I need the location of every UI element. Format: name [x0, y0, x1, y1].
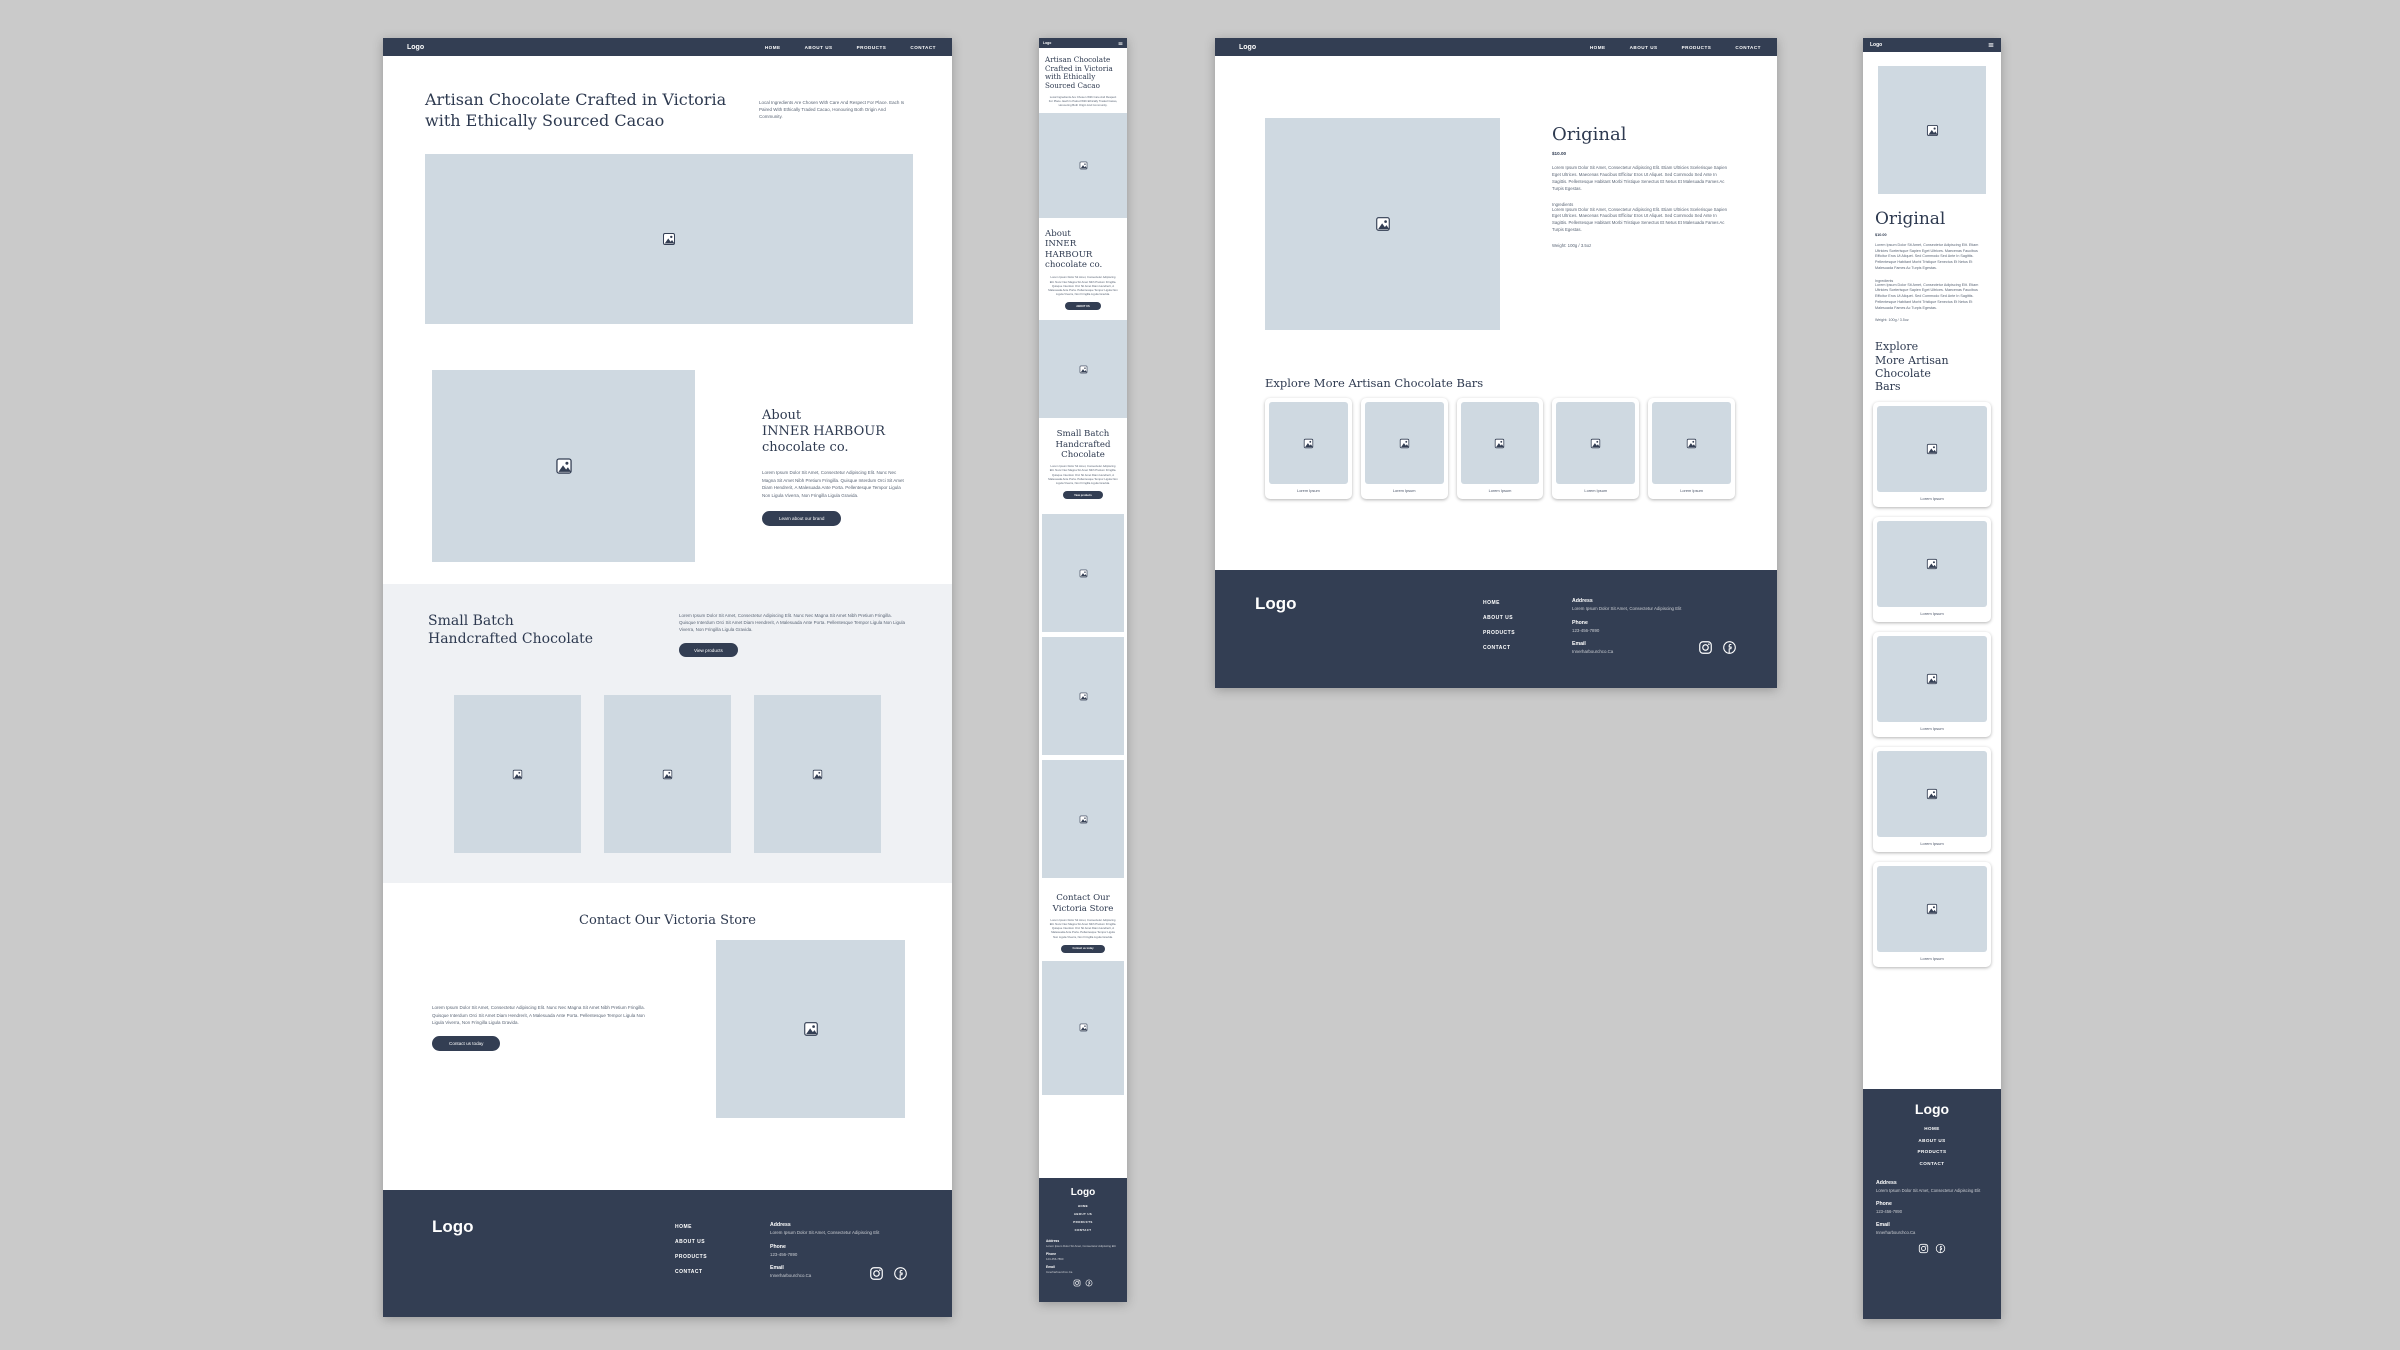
frame-desktop-product: Logo HOME ABOUT US PRODUCTS CONTACT Orig…	[1215, 38, 1777, 688]
product-card-label: Lorem Ipsum	[1877, 952, 1987, 963]
footer-contact-info: AddressLorem Ipsum Dolor Sit Amet, Conse…	[770, 1222, 952, 1287]
card-image-placeholder	[1365, 402, 1444, 484]
address-value: Lorem Ipsum Dolor Sit Amet, Consectetur …	[1572, 606, 1757, 613]
footer-link-contact[interactable]: CONTACT	[1863, 1161, 2001, 1166]
image-icon	[1079, 815, 1088, 824]
image-icon	[803, 1021, 819, 1037]
image-icon	[1590, 438, 1601, 449]
about-title: About INNER HARBOUR chocolate co.	[762, 408, 905, 457]
phone-value: 123-456-7890	[1046, 1257, 1120, 1261]
card-image-placeholder	[1877, 636, 1987, 722]
image-icon	[1079, 365, 1088, 374]
product-price: $10.00	[1875, 233, 1989, 237]
hamburger-menu-icon[interactable]	[1118, 41, 1123, 46]
logo[interactable]: Logo	[1239, 44, 1256, 51]
footer-logo: Logo	[1255, 594, 1297, 614]
product-card[interactable]: Lorem Ipsum	[1361, 398, 1448, 499]
footer-social	[1698, 640, 1737, 655]
main-nav: HOME ABOUT US PRODUCTS CONTACT	[765, 45, 936, 50]
product-image-placeholder	[1042, 637, 1124, 755]
product-description: Lorem Ipsum Dolor Sit Amet, Consectetur …	[1875, 243, 1989, 272]
product-cards-column: Lorem Ipsum Lorem Ipsum Lorem Ipsum Lore…	[1863, 402, 2001, 967]
logo[interactable]: Logo	[407, 44, 424, 51]
about-cta-button[interactable]: Learn about our brand	[762, 511, 841, 526]
card-image-placeholder	[1652, 402, 1731, 484]
footer-link-home[interactable]: HOME	[1039, 1204, 1127, 1208]
card-image-placeholder	[1877, 866, 1987, 952]
footer-link-products[interactable]: PRODUCTS	[1863, 1149, 2001, 1154]
phone-value: 123-456-7890	[1876, 1209, 1988, 1215]
contact-title: Contact Our Victoria Store	[383, 913, 952, 928]
email-value: Innerharbourchco.Ca	[770, 1273, 952, 1280]
card-image-placeholder	[1461, 402, 1540, 484]
footer-logo: Logo	[1039, 1187, 1127, 1198]
frame-desktop-home: Logo HOME ABOUT US PRODUCTS CONTACT Arti…	[383, 38, 952, 1317]
about-section: About INNER HARBOUR chocolate co. Lorem …	[383, 324, 952, 562]
product-image-placeholder	[454, 695, 581, 853]
product-image-placeholder	[604, 695, 731, 853]
footer-link-contact[interactable]: CONTACT	[675, 1269, 707, 1275]
footer-contact-info: AddressLorem Ipsum Dolor Sit Amet, Conse…	[1863, 1180, 2001, 1237]
footer-links: HOME ABOUT US PRODUCTS CONTACT	[1483, 600, 1515, 651]
product-card[interactable]: Lorem Ipsum	[1265, 398, 1352, 499]
product-image-placeholder	[1042, 514, 1124, 632]
product-image-placeholder	[1878, 66, 1986, 194]
footer: Logo HOME ABOUT US PRODUCTS CONTACT Addr…	[1039, 1178, 1127, 1302]
product-card-label: Lorem Ipsum	[1269, 484, 1348, 495]
product-description: Lorem Ipsum Dolor Sit Amet, Consectetur …	[1552, 165, 1729, 193]
nav-link-contact[interactable]: CONTACT	[1735, 45, 1761, 50]
products-body: Lorem Ipsum Dolor Sit Amet, Consectetur …	[1045, 464, 1121, 485]
image-icon	[1079, 161, 1088, 170]
footer-social	[1039, 1279, 1127, 1287]
product-card[interactable]: Lorem Ipsum	[1648, 398, 1735, 499]
footer-link-contact[interactable]: CONTACT	[1483, 645, 1515, 651]
design-canvas: Logo HOME ABOUT US PRODUCTS CONTACT Arti…	[0, 0, 2400, 1350]
contact-cta-button[interactable]: Contact us today	[432, 1036, 500, 1051]
nav-link-contact[interactable]: CONTACT	[910, 45, 936, 50]
explore-section: Explore More Artisan Chocolate Bars	[1863, 340, 2001, 393]
products-title: Small Batch Handcrafted Chocolate	[428, 612, 603, 658]
footer-link-products[interactable]: PRODUCTS	[675, 1254, 707, 1260]
footer-logo: Logo	[1863, 1101, 2001, 1117]
product-price: $10.00	[1552, 151, 1729, 156]
footer-link-products[interactable]: PRODUCTS	[1039, 1220, 1127, 1224]
product-images-row	[428, 695, 907, 853]
address-label: Address	[1876, 1180, 1988, 1186]
image-icon	[1079, 692, 1088, 701]
image-icon	[1926, 124, 1939, 137]
phone-label: Phone	[1572, 620, 1757, 626]
hero-blurb: Local Ingredients Are Chosen With Care A…	[759, 99, 905, 132]
ingredients-text: Lorem Ipsum Dolor Sit Amet, Consectetur …	[1552, 207, 1729, 235]
hero-section: Artisan Chocolate Crafted in Victoria wi…	[1039, 48, 1127, 113]
card-image-placeholder	[1877, 406, 1987, 492]
footer-link-products[interactable]: PRODUCTS	[1483, 630, 1515, 636]
email-label: Email	[1876, 1222, 1988, 1228]
phone-label: Phone	[1046, 1252, 1120, 1256]
phone-value: 123-456-7890	[770, 1252, 952, 1259]
product-image-placeholder	[754, 695, 881, 853]
product-card[interactable]: Lorem Ipsum	[1873, 517, 1991, 622]
facebook-icon[interactable]	[893, 1266, 908, 1281]
footer-social	[1863, 1243, 2001, 1254]
image-icon	[662, 769, 673, 780]
ingredients-text: Lorem Ipsum Dolor Sit Amet, Consectetur …	[1875, 283, 1989, 312]
card-image-placeholder	[1269, 402, 1348, 484]
instagram-icon[interactable]	[869, 1266, 884, 1281]
email-value: Innerharbourchco.Ca	[1046, 1270, 1120, 1274]
hero-title: Artisan Chocolate Crafted in Victoria wi…	[425, 90, 755, 132]
footer-contact-info: AddressLorem Ipsum Dolor Sit Amet, Conse…	[1039, 1239, 1127, 1275]
view-products-button[interactable]: View products	[1063, 491, 1103, 499]
product-name: Original	[1875, 209, 1989, 229]
card-image-placeholder	[1877, 521, 1987, 607]
phone-label: Phone	[1876, 1201, 1988, 1207]
instagram-icon[interactable]	[1698, 640, 1713, 655]
product-image-placeholder	[1042, 760, 1124, 878]
header-navbar: Logo HOME ABOUT US PRODUCTS CONTACT	[383, 38, 952, 56]
product-card[interactable]: Lorem Ipsum	[1873, 747, 1991, 852]
footer-link-about[interactable]: ABOUT US	[1039, 1212, 1127, 1216]
footer: Logo HOME ABOUT US PRODUCTS CONTACT Addr…	[383, 1190, 952, 1317]
product-card-label: Lorem Ipsum	[1652, 484, 1731, 495]
footer-link-home[interactable]: HOME	[1863, 1126, 2001, 1131]
product-weight: Weight: 100g / 3.5oz	[1875, 318, 1989, 322]
nav-link-home[interactable]: HOME	[765, 45, 781, 50]
product-card[interactable]: Lorem Ipsum	[1873, 402, 1991, 507]
product-card-label: Lorem Ipsum	[1365, 484, 1444, 495]
header-navbar: Logo	[1039, 38, 1127, 48]
contact-cta-button[interactable]: Contact us today	[1061, 945, 1104, 953]
hero-section: Artisan Chocolate Crafted in Victoria wi…	[383, 56, 952, 132]
contact-title: Contact Our Victoria Store	[1045, 893, 1121, 914]
main-nav: HOME ABOUT US PRODUCTS CONTACT	[1590, 45, 1761, 50]
product-card-label: Lorem Ipsum	[1877, 722, 1987, 733]
instagram-icon[interactable]	[1918, 1243, 1929, 1254]
header-navbar: Logo	[1863, 38, 2001, 52]
contact-image-placeholder	[716, 940, 905, 1118]
footer: Logo HOME ABOUT US PRODUCTS CONTACT Addr…	[1215, 570, 1777, 688]
phone-label: Phone	[770, 1244, 952, 1250]
image-icon	[1303, 438, 1314, 449]
footer-links: HOME ABOUT US PRODUCTS CONTACT	[1039, 1204, 1127, 1232]
footer-links: HOME ABOUT US PRODUCTS CONTACT	[675, 1224, 707, 1275]
product-name: Original	[1552, 124, 1729, 145]
image-icon	[1926, 443, 1938, 455]
explore-title: Explore More Artisan Chocolate Bars	[1875, 340, 1989, 393]
image-icon	[1494, 438, 1505, 449]
contact-body: Lorem Ipsum Dolor Sit Amet, Consectetur …	[1045, 918, 1121, 939]
about-section: About INNER HARBOUR chocolate co. Lorem …	[1039, 218, 1127, 320]
image-icon	[1926, 788, 1938, 800]
contact-section: Contact Our Victoria Store Lorem Ipsum D…	[1039, 883, 1127, 961]
product-detail-section: Original $10.00 Lorem Ipsum Dolor Sit Am…	[1215, 56, 1777, 330]
product-card-label: Lorem Ipsum	[1461, 484, 1540, 495]
image-icon	[1079, 569, 1088, 578]
product-detail-section: Original $10.00 Lorem Ipsum Dolor Sit Am…	[1863, 209, 2001, 322]
nav-link-about[interactable]: ABOUT US	[805, 45, 833, 50]
image-icon	[512, 769, 523, 780]
image-icon	[662, 232, 676, 246]
image-icon	[1926, 673, 1938, 685]
footer-links: HOME ABOUT US PRODUCTS CONTACT	[1863, 1126, 2001, 1166]
image-icon	[1079, 1023, 1088, 1032]
footer: Logo HOME ABOUT US PRODUCTS CONTACT Addr…	[1863, 1089, 2001, 1319]
products-title: Small Batch Handcrafted Chocolate	[1045, 429, 1121, 460]
image-icon	[1399, 438, 1410, 449]
image-icon	[1926, 903, 1938, 915]
facebook-icon[interactable]	[1935, 1243, 1946, 1254]
contact-image-placeholder	[1042, 961, 1124, 1095]
about-image-placeholder	[1039, 320, 1127, 418]
hamburger-menu-icon[interactable]	[1988, 42, 1994, 48]
view-products-button[interactable]: View products	[679, 643, 738, 657]
footer-link-about[interactable]: ABOUT US	[1863, 1138, 2001, 1143]
contact-section: Contact Our Victoria Store Lorem Ipsum D…	[383, 883, 952, 1118]
product-card-label: Lorem Ipsum	[1877, 492, 1987, 503]
address-label: Address	[1572, 598, 1757, 604]
phone-value: 123-456-7890	[1572, 628, 1757, 635]
image-icon	[1686, 438, 1697, 449]
hero-title: Artisan Chocolate Crafted in Victoria wi…	[1045, 56, 1119, 91]
frame-mobile-home: Logo Artisan Chocolate Crafted in Victor…	[1039, 38, 1127, 1302]
footer-social	[869, 1266, 908, 1281]
footer-link-home[interactable]: HOME	[675, 1224, 707, 1230]
explore-title: Explore More Artisan Chocolate Bars	[1265, 376, 1735, 390]
product-weight: Weight: 100g / 3.5oz	[1552, 243, 1729, 248]
hero-image-placeholder	[425, 154, 913, 324]
explore-section: Explore More Artisan Chocolate Bars Lore…	[1215, 330, 1777, 499]
hero-blurb: Local Ingredients Are Chosen With Care A…	[1045, 95, 1121, 108]
about-body: Lorem Ipsum Dolor Sit Amet, Consectetur …	[1045, 275, 1121, 296]
address-value: Lorem Ipsum Dolor Sit Amet, Consectetur …	[770, 1230, 952, 1237]
image-icon	[1926, 558, 1938, 570]
logo[interactable]: Logo	[1870, 42, 1882, 48]
address-value: Lorem Ipsum Dolor Sit Amet, Consectetur …	[1046, 1244, 1120, 1248]
footer-link-contact[interactable]: CONTACT	[1039, 1228, 1127, 1232]
address-value: Lorem Ipsum Dolor Sit Amet, Consectetur …	[1876, 1188, 1988, 1194]
nav-link-products[interactable]: PRODUCTS	[1682, 45, 1712, 50]
image-icon	[812, 769, 823, 780]
logo[interactable]: Logo	[1043, 41, 1051, 45]
image-icon	[1375, 216, 1391, 232]
product-card[interactable]: Lorem Ipsum	[1552, 398, 1639, 499]
contact-body: Lorem Ipsum Dolor Sit Amet, Consectetur …	[432, 1004, 654, 1026]
address-label: Address	[1046, 1239, 1120, 1243]
instagram-icon[interactable]	[1073, 1279, 1081, 1287]
card-image-placeholder	[1877, 751, 1987, 837]
product-card[interactable]: Lorem Ipsum	[1873, 862, 1991, 967]
products-section: Small Batch Handcrafted Chocolate Lorem …	[383, 584, 952, 884]
products-body: Lorem Ipsum Dolor Sit Amet, Consectetur …	[679, 612, 907, 634]
frame-mobile-product: Logo Original $10.00 Lorem Ipsum Dolor S…	[1863, 38, 2001, 1319]
about-title: About INNER HARBOUR chocolate co.	[1045, 229, 1109, 270]
nav-link-products[interactable]: PRODUCTS	[857, 45, 887, 50]
about-cta-button[interactable]: ABOUT US	[1065, 302, 1101, 310]
footer-link-about[interactable]: ABOUT US	[1483, 615, 1515, 621]
footer-link-home[interactable]: HOME	[1483, 600, 1515, 606]
products-section: Small Batch Handcrafted Chocolate Lorem …	[1039, 418, 1127, 509]
email-value: Innerharbourchco.Ca	[1876, 1230, 1988, 1236]
card-image-placeholder	[1556, 402, 1635, 484]
product-card-label: Lorem Ipsum	[1556, 484, 1635, 495]
nav-link-home[interactable]: HOME	[1590, 45, 1606, 50]
product-card-label: Lorem Ipsum	[1877, 607, 1987, 618]
product-card[interactable]: Lorem Ipsum	[1457, 398, 1544, 499]
hero-image-placeholder	[1039, 113, 1127, 218]
nav-link-about[interactable]: ABOUT US	[1630, 45, 1658, 50]
email-label: Email	[1046, 1265, 1120, 1269]
about-body: Lorem Ipsum Dolor Sit Amet, Consectetur …	[762, 469, 905, 499]
header-navbar: Logo HOME ABOUT US PRODUCTS CONTACT	[1215, 38, 1777, 56]
footer-link-about[interactable]: ABOUT US	[675, 1239, 707, 1245]
facebook-icon[interactable]	[1085, 1279, 1093, 1287]
product-card-label: Lorem Ipsum	[1877, 837, 1987, 848]
product-cards-row: Lorem Ipsum Lorem Ipsum Lorem Ipsum Lore…	[1265, 398, 1735, 499]
address-label: Address	[770, 1222, 952, 1228]
facebook-icon[interactable]	[1722, 640, 1737, 655]
footer-logo: Logo	[432, 1217, 474, 1237]
product-image-placeholder	[1265, 118, 1500, 330]
email-label: Email	[770, 1265, 952, 1271]
about-image-placeholder	[432, 370, 695, 562]
product-card[interactable]: Lorem Ipsum	[1873, 632, 1991, 737]
image-icon	[555, 457, 573, 475]
